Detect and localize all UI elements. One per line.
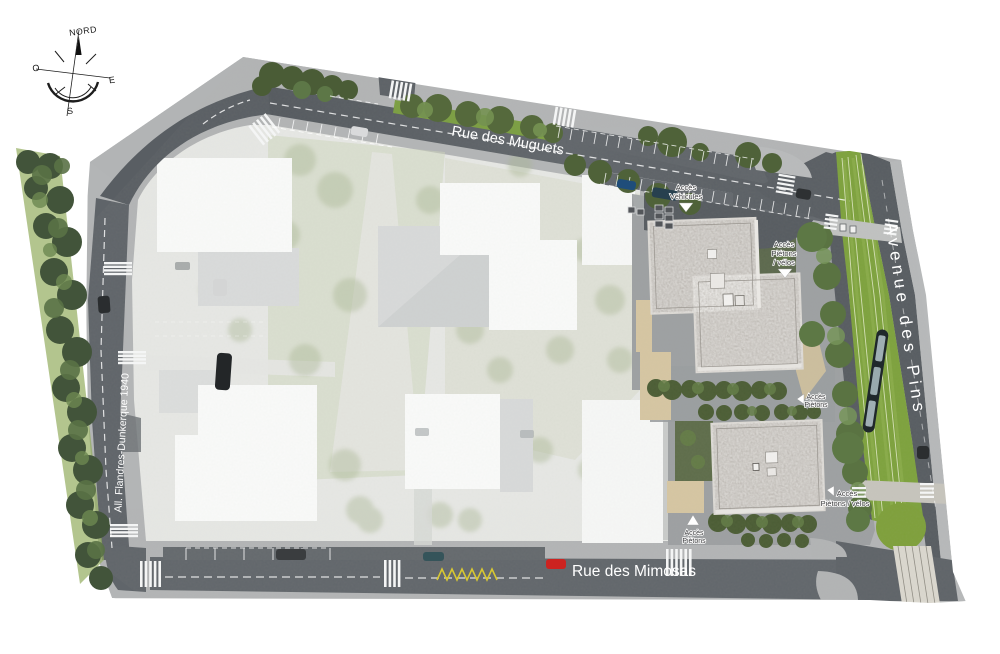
svg-text:Accès: Accès	[806, 394, 826, 401]
svg-text:Rue des Mimosas: Rue des Mimosas	[572, 563, 696, 580]
svg-text:Véhicules: Véhicules	[670, 192, 703, 201]
svg-text:O: O	[32, 63, 40, 74]
svg-text:Accès: Accès	[684, 530, 704, 537]
svg-text:Accès: Accès	[774, 240, 795, 249]
svg-text:Piétons: Piétons	[682, 538, 706, 545]
svg-text:Piétons: Piétons	[804, 402, 828, 409]
svg-text:/ vélos: / vélos	[773, 258, 795, 267]
svg-text:Accès: Accès	[837, 489, 858, 498]
svg-text:Piétons: Piétons	[771, 249, 796, 258]
svg-text:Piétons / vélos: Piétons / vélos	[821, 499, 870, 508]
svg-text:Accès: Accès	[676, 183, 697, 192]
